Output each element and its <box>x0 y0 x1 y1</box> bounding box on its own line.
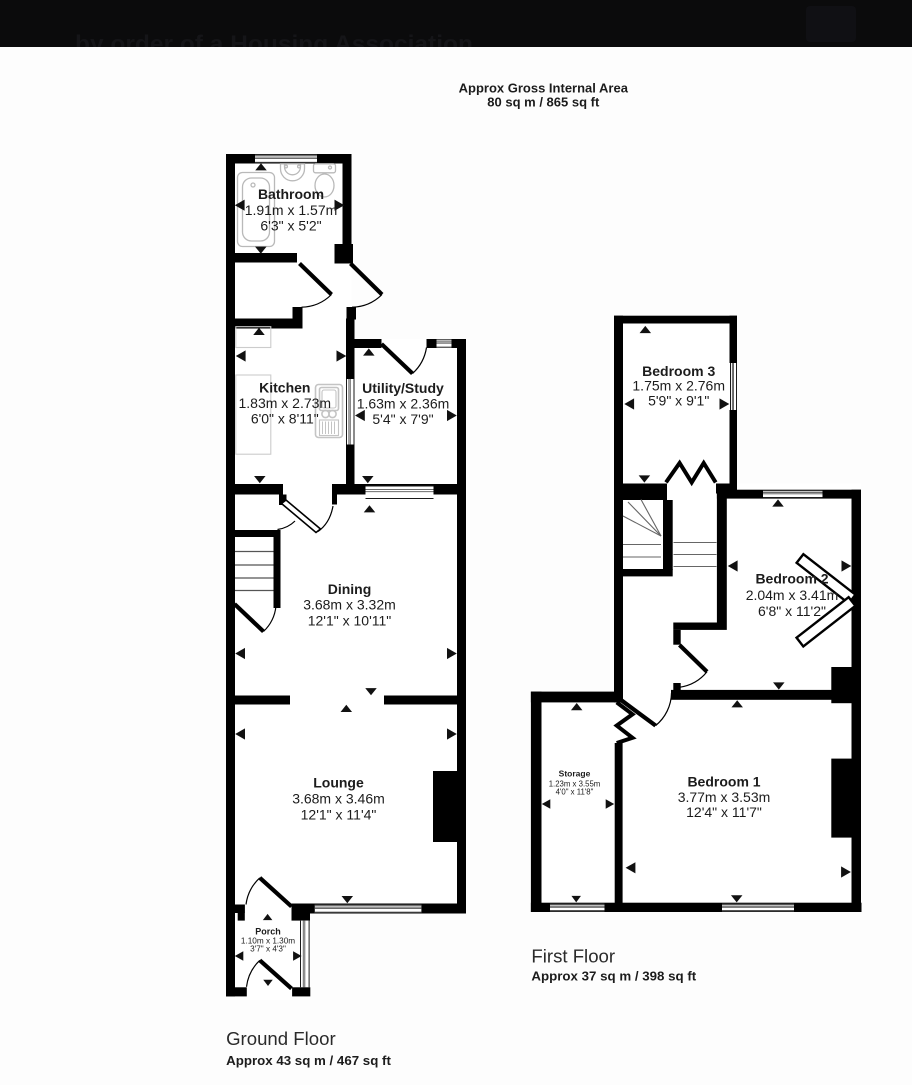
svg-text:1.91m x 1.57m: 1.91m x 1.57m <box>245 202 338 218</box>
svg-text:Porch: Porch <box>255 927 281 937</box>
svg-text:Utility/Study: Utility/Study <box>362 380 444 396</box>
svg-text:4'0" x 11'8": 4'0" x 11'8" <box>556 788 594 797</box>
svg-text:12'1" x 10'11": 12'1" x 10'11" <box>308 612 392 628</box>
svg-text:2.04m x 3.41m: 2.04m x 3.41m <box>746 587 839 603</box>
svg-text:1.83m x 2.73m: 1.83m x 2.73m <box>238 395 331 411</box>
svg-text:3'7" x 4'3": 3'7" x 4'3" <box>250 945 286 954</box>
svg-text:Lounge: Lounge <box>313 775 364 791</box>
svg-text:1.63m x 2.36m: 1.63m x 2.36m <box>357 396 450 412</box>
svg-text:Storage: Storage <box>559 769 591 779</box>
svg-text:First Floor: First Floor <box>531 946 615 967</box>
svg-text:12'1" x 11'4": 12'1" x 11'4" <box>301 807 377 823</box>
svg-text:5'4" x 7'9": 5'4" x 7'9" <box>372 411 433 427</box>
svg-text:1.75m x 2.76m: 1.75m x 2.76m <box>632 378 725 394</box>
svg-text:Bathroom: Bathroom <box>258 186 324 202</box>
svg-text:5'9" x 9'1": 5'9" x 9'1" <box>648 393 709 409</box>
svg-text:6'3" x 5'2": 6'3" x 5'2" <box>260 218 321 234</box>
svg-text:Bedroom 3: Bedroom 3 <box>642 363 715 379</box>
svg-text:6'8" x 11'2": 6'8" x 11'2" <box>758 603 826 619</box>
svg-text:3.68m x 3.46m: 3.68m x 3.46m <box>292 791 385 807</box>
svg-text:Approx Gross Internal Area: Approx Gross Internal Area <box>459 81 629 96</box>
svg-text:Bedroom 1: Bedroom 1 <box>687 774 760 790</box>
svg-text:80 sq m / 865 sq ft: 80 sq m / 865 sq ft <box>487 95 600 110</box>
svg-text:6'0" x 8'11": 6'0" x 8'11" <box>251 411 319 427</box>
svg-text:Approx 37 sq m / 398 sq ft: Approx 37 sq m / 398 sq ft <box>531 969 696 984</box>
svg-text:Approx 43 sq m / 467 sq ft: Approx 43 sq m / 467 sq ft <box>226 1053 391 1068</box>
svg-text:3.68m x 3.32m: 3.68m x 3.32m <box>303 597 396 613</box>
svg-text:Ground Floor: Ground Floor <box>226 1028 336 1049</box>
svg-text:Kitchen: Kitchen <box>259 380 310 396</box>
svg-text:Dining: Dining <box>328 581 372 597</box>
svg-text:12'4" x 11'7": 12'4" x 11'7" <box>686 804 762 820</box>
svg-text:Bedroom 2: Bedroom 2 <box>755 570 828 586</box>
svg-text:3.77m x 3.53m: 3.77m x 3.53m <box>678 789 771 805</box>
